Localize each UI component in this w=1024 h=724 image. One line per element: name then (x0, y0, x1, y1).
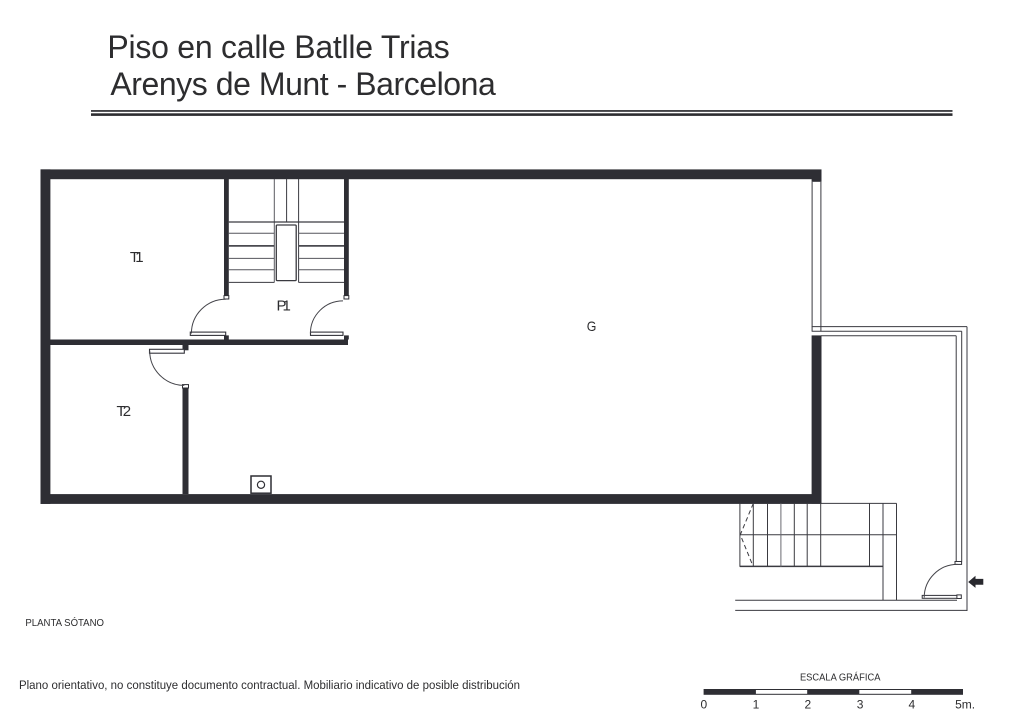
svg-text:1: 1 (753, 697, 760, 711)
svg-text:5m.: 5m. (955, 697, 975, 711)
svg-text:Arenys de Munt - Barcelona: Arenys de Munt - Barcelona (110, 66, 496, 102)
svg-text:PLANTA SÓTANO: PLANTA SÓTANO (25, 616, 104, 629)
svg-text:Plano orientativo, no constitu: Plano orientativo, no constituye documen… (19, 678, 520, 692)
svg-text:3: 3 (857, 697, 864, 711)
svg-text:T2: T2 (117, 403, 132, 420)
svg-text:ESCALA GRÁFICA: ESCALA GRÁFICA (800, 670, 881, 683)
svg-text:G: G (587, 318, 597, 334)
svg-text:Piso en calle Batlle Trias: Piso en calle Batlle Trias (107, 29, 449, 65)
svg-text:P1: P1 (277, 297, 291, 314)
svg-text:0: 0 (701, 697, 708, 711)
svg-text:T1: T1 (130, 249, 144, 266)
svg-text:2: 2 (805, 697, 812, 711)
svg-text:4: 4 (909, 697, 916, 711)
